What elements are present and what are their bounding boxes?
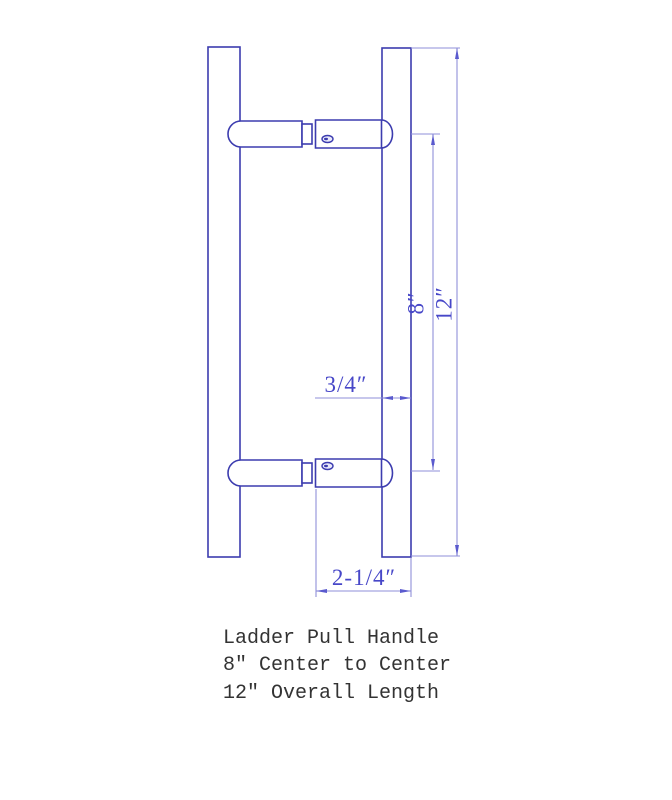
- caption-center-to-center: 8″ Center to Center: [223, 654, 451, 677]
- top-mounting-post: [228, 120, 393, 148]
- bottom-post-washer: [302, 463, 312, 483]
- bar-diameter-label: 3/4″: [325, 372, 368, 397]
- bottom-screw-slot: [324, 465, 328, 467]
- overall-length-label: 12″: [432, 286, 457, 322]
- arrowhead-left-icon: [316, 589, 327, 593]
- top-post-washer: [302, 124, 312, 144]
- top-post-back-cylinder: [228, 121, 302, 147]
- center-to-center-label: 8″: [404, 291, 429, 314]
- arrowhead-up-icon: [431, 134, 435, 145]
- top-screw-slot: [324, 138, 328, 140]
- bottom-post-back-cylinder: [228, 460, 302, 486]
- projection-label: 2-1/4″: [332, 565, 396, 590]
- caption-title: Ladder Pull Handle: [223, 627, 439, 650]
- screw-icon: [322, 463, 333, 470]
- ladder-pull-handle-drawing: 12″ 8″ 3/4″ 2-1/4″ La: [0, 0, 672, 800]
- drawing-canvas: 12″ 8″ 3/4″ 2-1/4″ La: [0, 0, 672, 800]
- caption: Ladder Pull Handle 8″ Center to Center 1…: [223, 627, 451, 705]
- arrowhead-up-icon: [455, 48, 459, 59]
- arrowhead-down-icon: [455, 545, 459, 556]
- arrowhead-right-icon: [400, 589, 411, 593]
- screw-icon: [322, 136, 333, 143]
- bottom-mounting-post: [228, 459, 393, 487]
- caption-overall-length: 12″ Overall Length: [223, 682, 439, 705]
- arrowhead-down-icon: [431, 459, 435, 470]
